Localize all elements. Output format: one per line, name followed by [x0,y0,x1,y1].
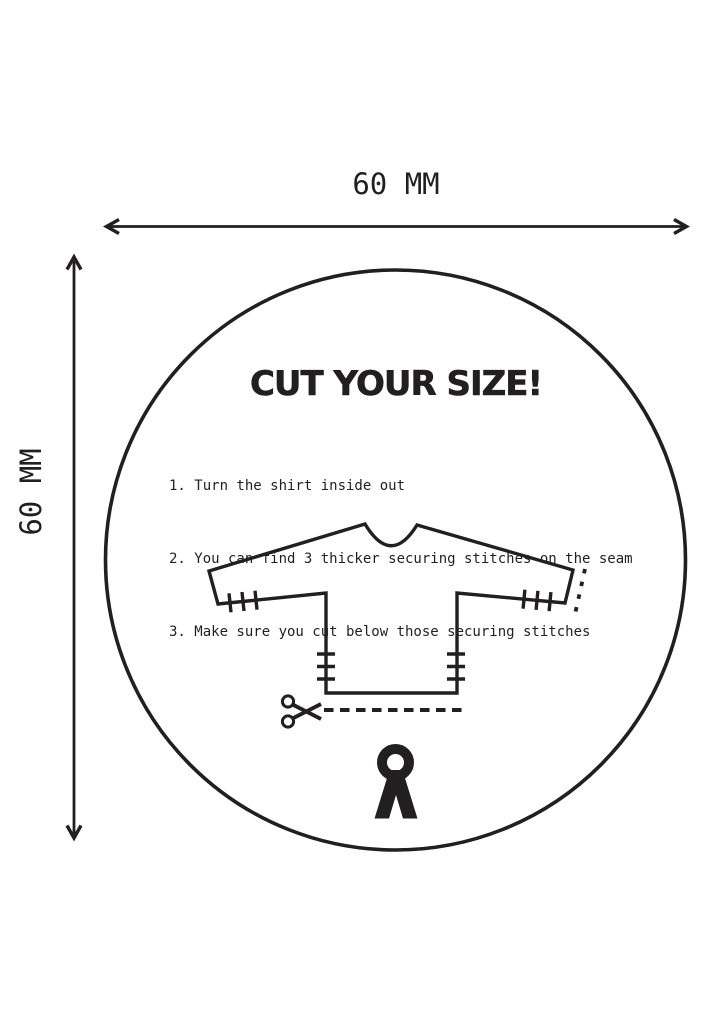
scissors-icon [282,696,321,727]
diagram-artwork [0,0,711,1024]
horizontal-dimension-arrow [107,220,687,234]
cuff-cut-dashed-line [576,569,586,612]
shirt-illustration [209,524,585,727]
sticker-circle-outline [106,270,686,850]
instruction-sheet: 60 MM 60 MM CUT YOUR SIZE! 1. Turn the s… [0,0,711,1024]
brand-logo [375,749,418,819]
vertical-dimension-arrow [67,257,81,838]
shirt-outline [209,524,573,693]
